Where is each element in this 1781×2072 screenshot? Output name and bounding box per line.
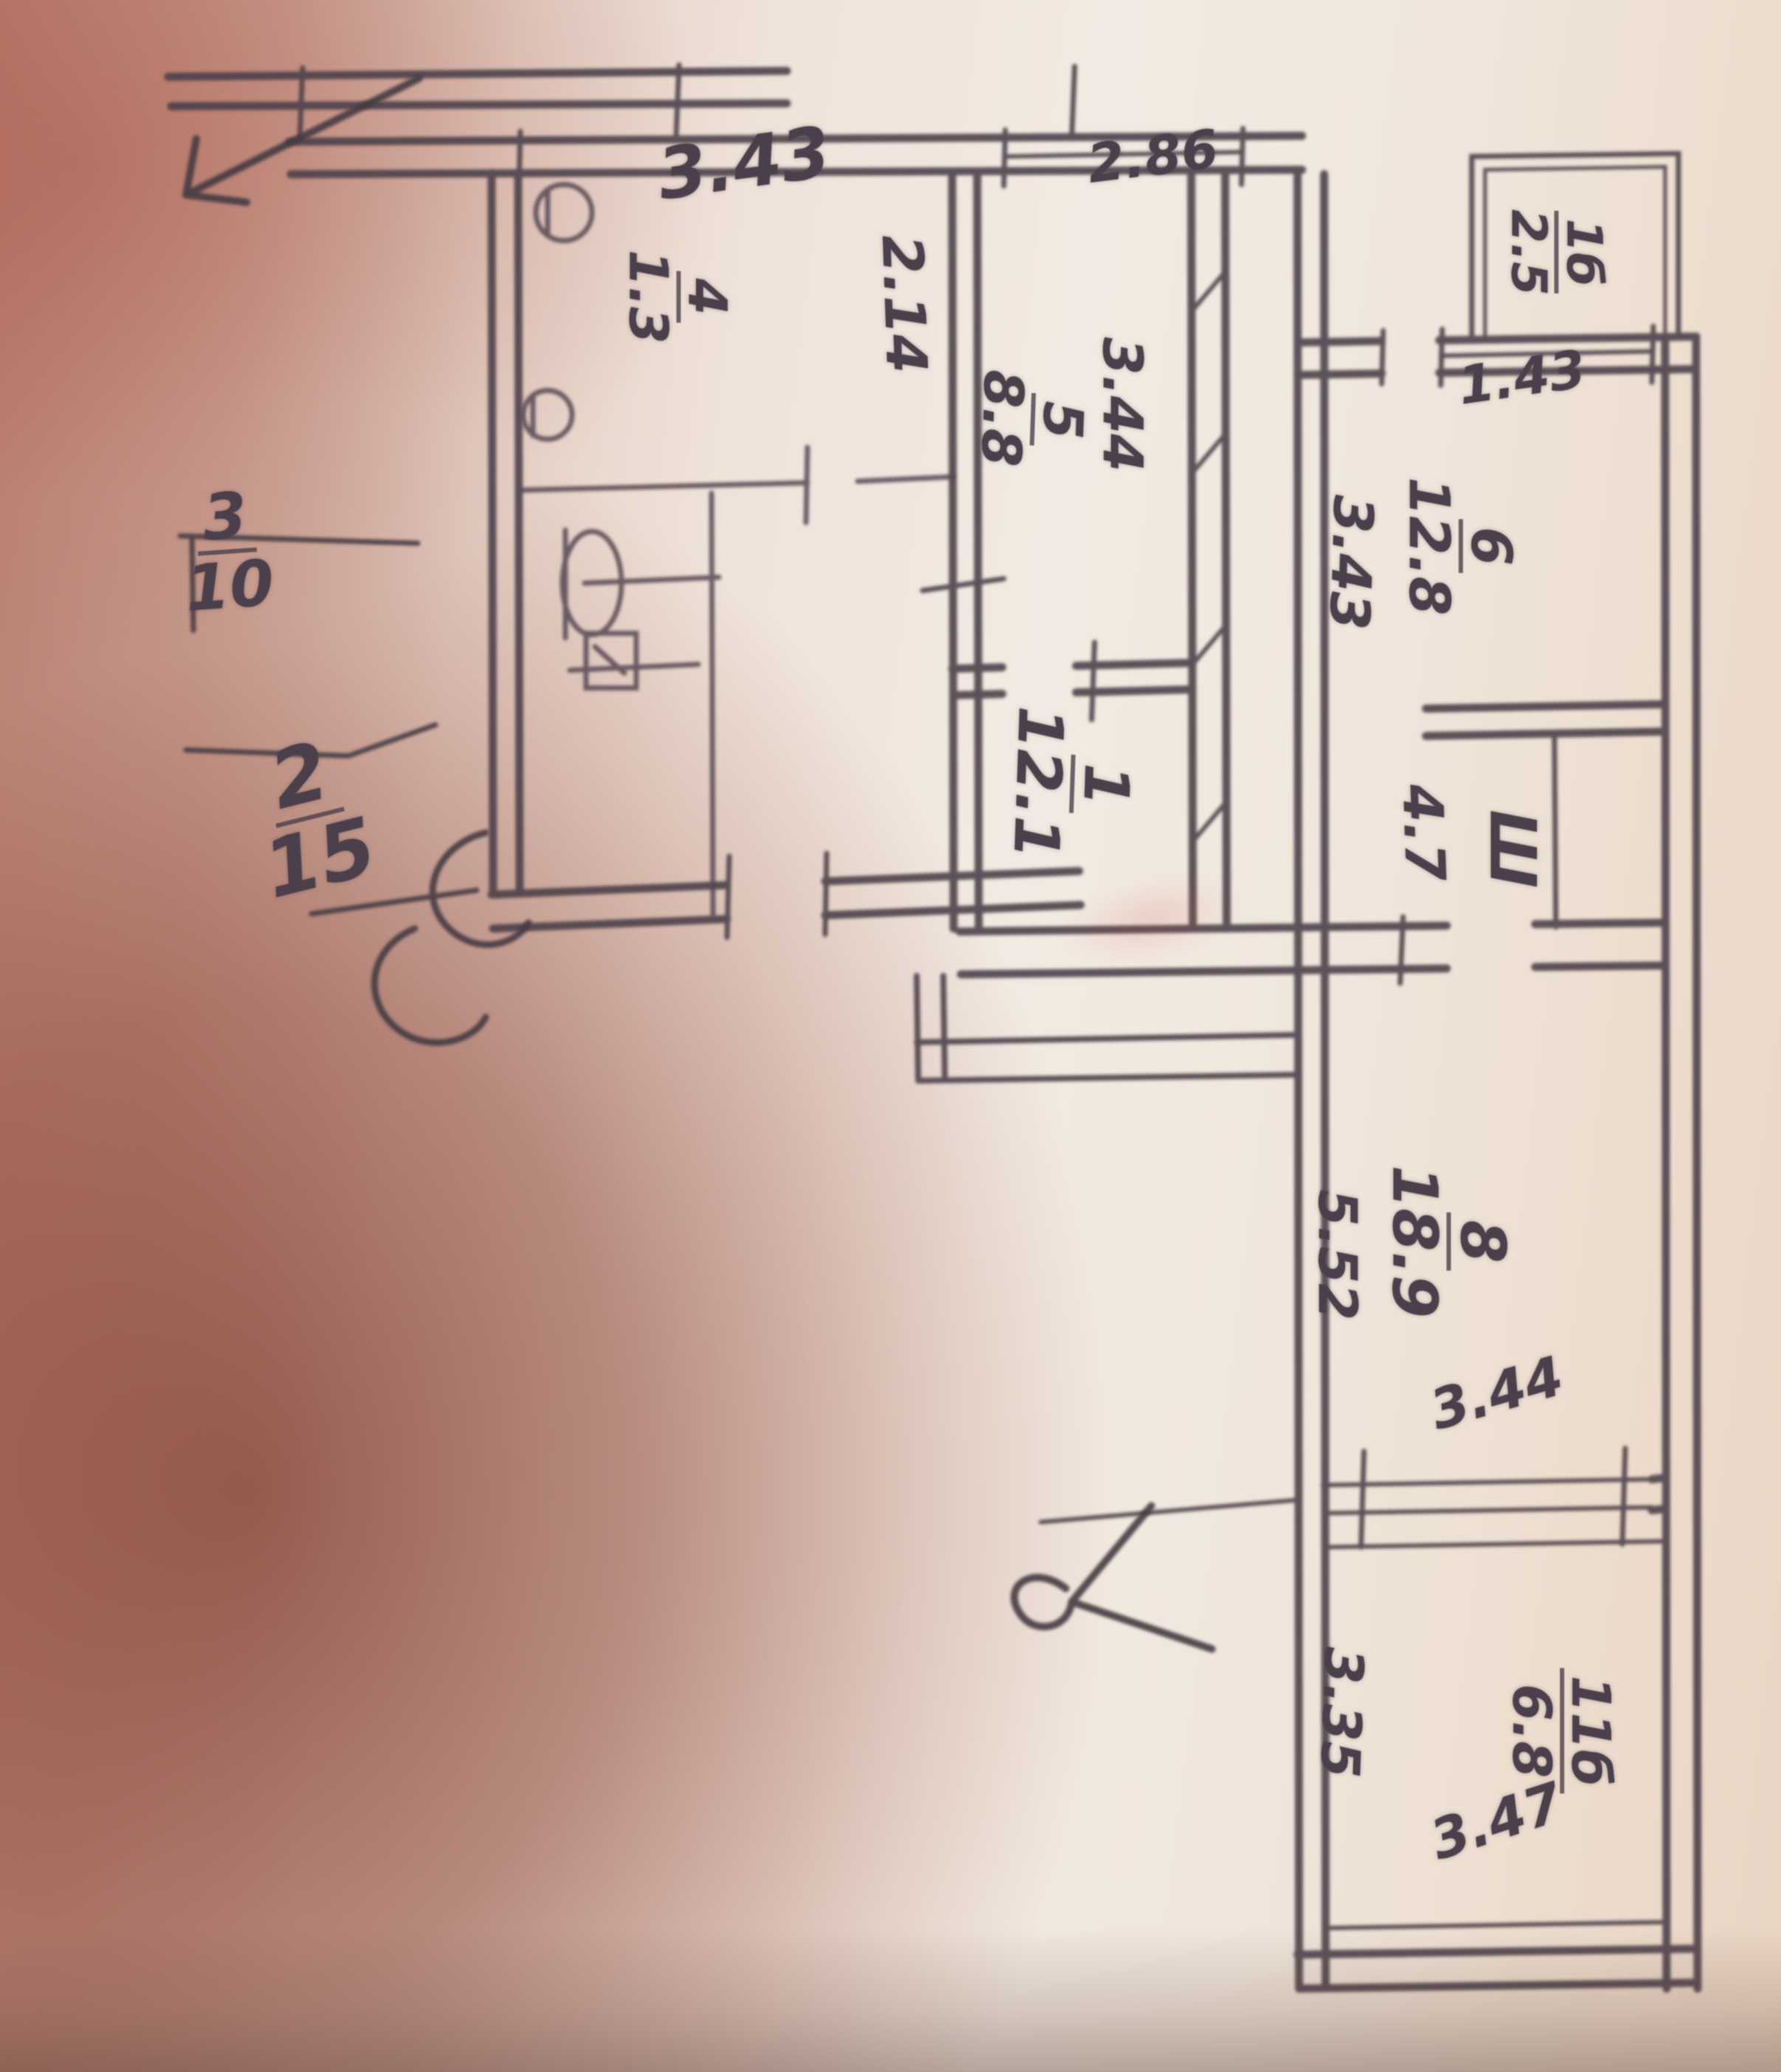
room-area: 8.8 [974, 369, 1032, 468]
room-label-kitchen: 5 8.8 [974, 369, 1089, 469]
wall-kitchen-left-inner [977, 174, 979, 929]
room-number: 5 [1030, 393, 1089, 447]
room-label-1: 1 12.1 [1006, 705, 1138, 862]
wall-kitchen-bottom [952, 663, 1190, 669]
room-number: 8 [1447, 1213, 1512, 1270]
room-fraction: 5 8.8 [974, 369, 1089, 469]
wall-top-gallery [168, 71, 787, 77]
room-label-6: 6 12.8 [1402, 477, 1518, 616]
dimension-label: 1.43 [1456, 345, 1588, 411]
loggia-inner-edge-bottom [1326, 1922, 1665, 1928]
wall-hatching [1193, 272, 1225, 841]
room-fraction: 4 1.3 [623, 249, 733, 344]
closet-symbol-label: Ш [1481, 810, 1542, 888]
door-swing-arc [374, 929, 486, 1042]
vent-shaft-symbol [536, 185, 592, 241]
wall-left-outer [492, 173, 493, 893]
wall-step-outline [917, 976, 1295, 1081]
wall-loggia-bottom-inner [1299, 1983, 1698, 1989]
dim-tick [1072, 66, 1075, 139]
window-tick [1241, 128, 1243, 185]
wall-bath-top [521, 477, 952, 490]
wall-left-outer-inner [518, 173, 520, 890]
room-area: 12.1 [1006, 705, 1073, 860]
room-fraction: 11б 6.8 [1506, 1668, 1616, 1794]
window-tick [1004, 130, 1005, 186]
room-area: 1.3 [623, 249, 676, 344]
room-label-loggia: 11б 6.8 [1506, 1668, 1616, 1794]
fixture-shelf [585, 577, 719, 583]
room-area: 6.8 [1506, 1684, 1560, 1778]
dim-tick [1400, 917, 1403, 983]
dim-tick [806, 447, 807, 523]
dimension-label: 3.35 [1315, 1646, 1370, 1779]
section-arrow-bottom-right [1072, 1506, 1212, 1649]
dimension-label: 2.14 [875, 234, 934, 374]
wall-duct-inner [1225, 174, 1227, 929]
dimension-label: 2.86 [1085, 123, 1222, 190]
room-area: 18.9 [1385, 1165, 1447, 1318]
room-label-wc: 4 1.3 [623, 249, 733, 344]
wall-right-outer-inner [1696, 337, 1698, 1989]
window-tick [1361, 1451, 1364, 1547]
window-tick [1622, 1448, 1625, 1544]
dimension-label: 4.7 [1396, 783, 1451, 881]
room-label-balcony: 1б 2.5 [1505, 210, 1606, 296]
room-fraction: 8 18.9 [1385, 1165, 1512, 1318]
dim-tick [923, 579, 1004, 591]
annotation-denominator: 15 [257, 806, 384, 909]
dimension-label: 3.44 [1096, 337, 1148, 472]
dimension-value: 3.44 [1090, 337, 1154, 472]
room-area: 12.8 [1402, 477, 1458, 616]
wall-bottom-left-inner [493, 905, 1081, 929]
dimension-value: 3.43 [1317, 494, 1385, 630]
dimension-value: 2.14 [869, 234, 940, 375]
room-fraction: 6 12.8 [1402, 477, 1518, 616]
stair-annotation-upper: 3 10 [179, 484, 276, 619]
wall-bath-divider [712, 493, 713, 915]
window-room8-inner [1324, 1507, 1652, 1513]
wall-right-wing-left [1298, 174, 1299, 1986]
room-fraction: 1 12.1 [1006, 705, 1138, 862]
wall-duct [1191, 174, 1193, 929]
dim-tick [300, 68, 303, 140]
floor-plan-photo: 3.43 4 1.3 2.14 5 8.8 3.44 2.86 1б 2.5 1… [0, 0, 1781, 2072]
door-jamb-tick [825, 853, 827, 935]
dimension-value: 4.7 [1390, 783, 1457, 882]
wall-bottom-left [492, 871, 1079, 895]
closet-divider [1554, 735, 1556, 927]
wall-facade-right [1298, 337, 1696, 343]
wall-kitchen-bottom-inner [954, 689, 1191, 695]
room-number: 1б [1554, 211, 1607, 294]
closet-symbol: Ш [1475, 810, 1549, 888]
door-jamb-tick [727, 856, 729, 937]
section-arrow-loop [1014, 1577, 1072, 1627]
room-label-8: 8 18.9 [1385, 1165, 1512, 1318]
dimension-label: 5.52 [1312, 1189, 1363, 1321]
wall-right-outer [1665, 340, 1667, 1989]
dim-tick [676, 65, 679, 137]
dimension-label: 3.43 [1323, 495, 1379, 631]
annotation-numerator: 3 [193, 486, 257, 556]
dimension-value: 5.52 [1306, 1189, 1368, 1321]
room-fraction: 1б 2.5 [1505, 210, 1606, 296]
dimension-value: 3.35 [1309, 1646, 1375, 1779]
wall-kitchen-left [952, 174, 954, 929]
window-room8 [1323, 1479, 1650, 1485]
loggia-inner-edge-top [1326, 1541, 1665, 1547]
dimension-label: 3.43 [654, 119, 835, 209]
wall-room8-top-inner [961, 966, 1665, 974]
annotation-denominator: 10 [183, 551, 275, 620]
wall-loggia-bottom [1298, 1949, 1696, 1955]
wall-top-gallery-inner [171, 103, 787, 106]
door-jamb-tick [1382, 331, 1383, 384]
wall-hall-top [1426, 704, 1665, 709]
leader-line [1041, 1500, 1298, 1522]
window-tick [1441, 329, 1442, 385]
room-number: 4 [676, 271, 732, 323]
room-number: 1 [1069, 755, 1136, 815]
wall-hall-top-inner [1426, 732, 1665, 736]
room-number: 11б [1560, 1668, 1616, 1794]
room-area: 2.5 [1505, 210, 1554, 296]
window-tick [1652, 326, 1653, 382]
annotation-fraction: 3 10 [179, 484, 276, 619]
room-number: 6 [1458, 520, 1518, 574]
